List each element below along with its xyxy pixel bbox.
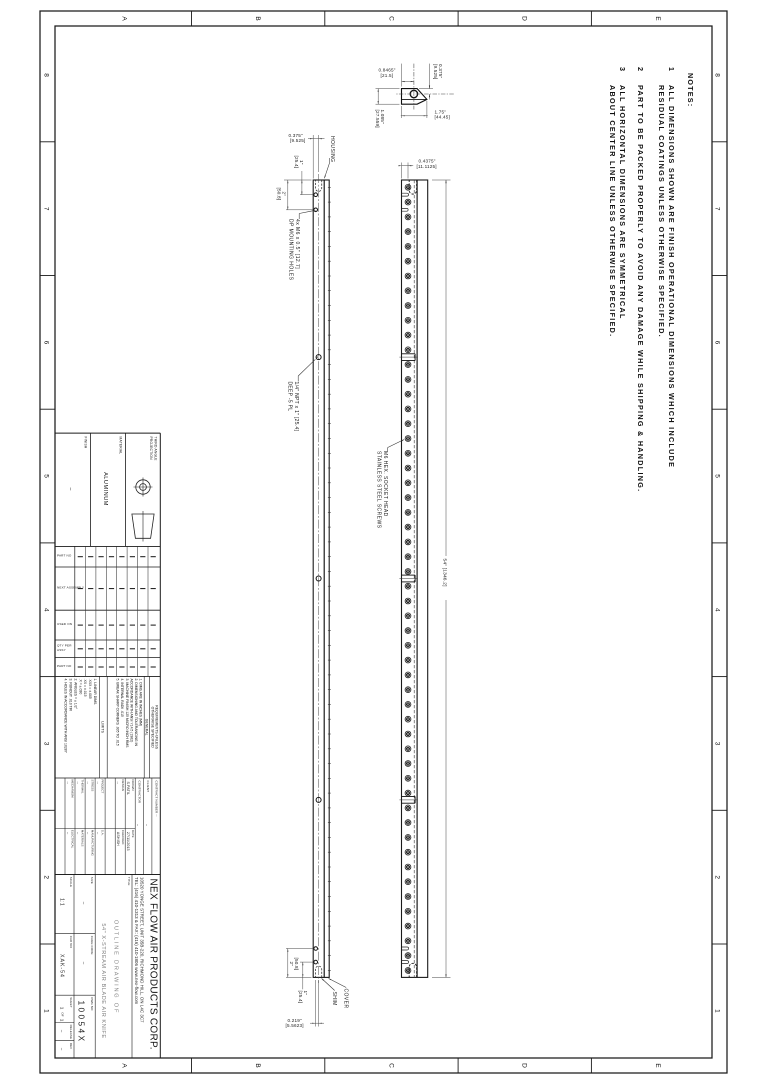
svg-text:–: –	[60, 1030, 65, 1033]
svg-text:SCALE: SCALE	[69, 877, 73, 887]
svg-text:–: –	[60, 1048, 65, 1051]
svg-text:MATERIALS: MATERIALS	[81, 830, 85, 847]
svg-text:ASSY: ASSY	[57, 648, 66, 652]
svg-text:MATERIAL: MATERIAL	[119, 437, 123, 455]
svg-text:1: 1	[667, 67, 676, 72]
svg-text:C: C	[387, 1063, 394, 1068]
svg-text:COVER: COVER	[342, 989, 348, 1009]
svg-text:CONTRACTOR: CONTRACTOR	[138, 781, 142, 804]
svg-text:--: --	[76, 832, 80, 835]
svg-text:ASHISH: ASHISH	[116, 832, 120, 846]
svg-text:TITLE: TITLE	[127, 877, 131, 886]
svg-text:[25.4]: [25.4]	[298, 991, 303, 1004]
svg-text:4x M6 x 0.5" [12.7]: 4x M6 x 0.5" [12.7]	[294, 219, 300, 269]
svg-text:[44.45]: [44.45]	[435, 115, 450, 120]
svg-text:OTHERWISE SPECIFIED: OTHERWISE SPECIFIED	[150, 707, 154, 749]
svg-text:ALUMINUM: ALUMINUM	[102, 472, 108, 506]
svg-text:RELEASE: RELEASE	[69, 1025, 73, 1040]
svg-text:SHEET: SHEET	[69, 997, 73, 1008]
svg-text:2. DIMENSIONING AND TOLERANCIN: 2. DIMENSIONING AND TOLERANCING IN	[134, 679, 138, 747]
svg-text:--: --	[116, 782, 120, 785]
svg-text:–: –	[82, 902, 87, 905]
svg-text:OUTLINE DRAWING OF: OUTLINE DRAWING OF	[113, 920, 119, 1014]
svg-text:PROJECTION: PROJECTION	[149, 437, 153, 461]
svg-text:OF: OF	[61, 1012, 65, 1016]
svg-text:7: 7	[714, 207, 721, 211]
svg-text:7: 7	[43, 207, 50, 211]
svg-text:8: 8	[43, 73, 50, 77]
svg-text:–: –	[67, 488, 73, 491]
svg-text:5: 5	[714, 474, 721, 478]
svg-text:--: --	[66, 782, 70, 785]
svg-text:0.4375": 0.4375"	[419, 159, 436, 164]
svg-text:S.PATIL: S.PATIL	[126, 782, 130, 796]
svg-text:MANUFACTURING: MANUFACTURING	[91, 830, 95, 857]
svg-text:2: 2	[714, 875, 721, 879]
svg-text:8: 8	[714, 73, 721, 77]
svg-text:CONTRACT NUMBER --: CONTRACT NUMBER --	[155, 781, 159, 817]
svg-text:[50.8]: [50.8]	[294, 958, 299, 971]
svg-text:USED ON: USED ON	[57, 622, 72, 626]
svg-text:NEX FLOW AIR PRODUCTS CORP.: NEX FLOW AIR PRODUCTS CORP.	[147, 879, 158, 1050]
svg-text:STAINLESS STEEL SCREWS: STAINLESS STEEL SCREWS	[376, 451, 382, 529]
svg-text:HOUSING: HOUSING	[329, 136, 335, 163]
svg-text:0.8465": 0.8465"	[379, 68, 396, 73]
svg-text:5: 5	[43, 474, 50, 478]
svg-text:PROJECT: PROJECT	[101, 780, 105, 794]
svg-text:3: 3	[618, 67, 627, 72]
svg-text:[21.5]: [21.5]	[381, 73, 394, 78]
svg-text:2. ANGLES = ± 1/2°: 2. ANGLES = ± 1/2°	[73, 679, 77, 710]
svg-text:3: 3	[714, 742, 721, 746]
svg-text:[9.525]: [9.525]	[433, 64, 438, 79]
svg-text:10520 YONGE STREET, UNIT 35B-2: 10520 YONGE STREET, UNIT 35B-220, RICHMO…	[140, 877, 145, 1023]
svg-text:10054X: 10054X	[77, 1000, 87, 1043]
svg-text:ALL DIMENSIONS SHOWN ARE FINIS: ALL DIMENSIONS SHOWN ARE FINISH OPERATIO…	[667, 85, 676, 468]
svg-text:ELECTRICAL: ELECTRICAL	[71, 830, 75, 849]
svg-text:1: 1	[714, 1009, 721, 1013]
svg-text:5. BREAK SHARP CORNERS .005 TO: 5. BREAK SHARP CORNERS .005 TO .015	[116, 679, 120, 746]
svg-text:ALL HORIZONTAL DIMENSIONS ARE: ALL HORIZONTAL DIMENSIONS ARE SYMMETRICA…	[618, 85, 627, 320]
svg-text:D: D	[521, 1063, 528, 1068]
svg-text:DESIGN: DESIGN	[121, 780, 125, 791]
svg-text:3: 3	[43, 742, 50, 746]
svg-text:–: –	[145, 824, 149, 826]
svg-text:PART TO BE PACKED PROPERLY TO: PART TO BE PACKED PROPERLY TO AVOID ANY …	[636, 85, 645, 492]
svg-text:DWG NO: DWG NO	[90, 997, 94, 1011]
svg-text:--: --	[66, 832, 70, 835]
svg-text:LIMITS: LIMITS	[101, 721, 105, 733]
svg-text:2: 2	[43, 875, 50, 879]
svg-text:[5.5623]: [5.5623]	[286, 1023, 304, 1028]
svg-text:54" [1346.2]: 54" [1346.2]	[442, 559, 448, 587]
svg-text:SIZE: SIZE	[90, 877, 94, 884]
svg-text:XAK-54: XAK-54	[59, 954, 65, 978]
svg-text:CLIENT: CLIENT	[146, 781, 150, 793]
svg-text:NOTES:: NOTES:	[686, 73, 695, 107]
svg-text:54" X-STREAM AIR BLADE AIR KNI: 54" X-STREAM AIR BLADE AIR KNIFE	[100, 923, 106, 1038]
svg-text:--: --	[96, 832, 100, 835]
svg-text:1. DIMS ARE IN INCHES (MM): 1. DIMS ARE IN INCHES (MM)	[138, 679, 142, 727]
svg-text:4. INTERNAL RADII .015: 4. INTERNAL RADII .015	[120, 679, 124, 718]
svg-text:B: B	[254, 1063, 261, 1067]
svg-text:1. LINEAR DIMS.: 1. LINEAR DIMS.	[93, 679, 97, 706]
svg-text:2: 2	[636, 67, 645, 72]
svg-text:27/11/2013: 27/11/2013	[126, 832, 130, 851]
svg-text:DP MOUNTING HOLES: DP MOUNTING HOLES	[288, 219, 294, 281]
svg-text:–: –	[136, 824, 140, 826]
svg-text:--: --	[86, 782, 90, 785]
svg-text:DEEP -5 PL: DEEP -5 PL	[287, 382, 293, 412]
svg-text:E: E	[654, 1063, 661, 1068]
svg-text:CHECKED: CHECKED	[121, 830, 125, 844]
svg-text:--: --	[96, 782, 100, 785]
svg-text:--: --	[76, 782, 80, 785]
svg-text:2": 2"	[289, 962, 294, 967]
svg-text:1: 1	[60, 1019, 65, 1022]
svg-text:RESIDUAL COATINGS UNLESS OTHER: RESIDUAL COATINGS UNLESS OTHERWISE SPECI…	[657, 85, 666, 338]
svg-text:6: 6	[43, 341, 50, 345]
svg-text:6: 6	[714, 341, 721, 345]
svg-text:ACCORDANCE WITH ANSI Y14.5 (19: ACCORDANCE WITH ANSI Y14.5 (1982)	[129, 679, 133, 743]
svg-text:DRAWN: DRAWN	[131, 780, 135, 791]
svg-text:FINISH: FINISH	[84, 437, 88, 449]
svg-text:S.A.: S.A.	[101, 830, 105, 836]
svg-text:.XX = ±.015: .XX = ±.015	[83, 679, 87, 697]
svg-text:1: 1	[43, 1009, 50, 1013]
svg-text:[50.8]: [50.8]	[277, 188, 282, 201]
svg-text:DATE: DATE	[131, 830, 135, 838]
svg-text:M6 HEX. SOCKET HEAD: M6 HEX. SOCKET HEAD	[382, 451, 388, 517]
svg-text:1: 1	[60, 1007, 65, 1010]
svg-text:THIRD ANGLE: THIRD ANGLE	[154, 437, 158, 462]
svg-text:3. MACHINE FINISH 125 MICRO IN: 3. MACHINE FINISH 125 MICRO INCH RMS	[125, 679, 129, 749]
svg-text:TEL: (416) 410-1313 & FAX: (41: TEL: (416) 410-1313 & FAX: (416) 410-180…	[134, 877, 139, 1005]
svg-text:.XXX = ±.005: .XXX = ±.005	[88, 679, 92, 699]
svg-text:REV: REV	[69, 1043, 73, 1049]
svg-text:SHIM: SHIM	[331, 992, 337, 1006]
svg-text:[27.559]: [27.559]	[375, 110, 380, 128]
svg-text:A: A	[121, 16, 128, 21]
svg-text:[25.4]: [25.4]	[294, 156, 299, 169]
svg-text:E: E	[654, 16, 661, 21]
svg-text:PART NO: PART NO	[57, 554, 72, 558]
svg-text:--: --	[86, 832, 90, 835]
svg-text:B: B	[254, 16, 261, 20]
svg-text:MECHANISM: MECHANISM	[71, 780, 75, 799]
svg-text:[11.1125]: [11.1125]	[417, 164, 437, 169]
svg-text:4: 4	[714, 608, 721, 612]
svg-text:GENERAL: GENERAL	[145, 719, 149, 736]
svg-text:ABOUT CENTER LINE UNLESS OTHER: ABOUT CENTER LINE UNLESS OTHERWISE SPECI…	[608, 85, 617, 337]
svg-text:–: –	[82, 962, 87, 965]
svg-text:D: D	[521, 16, 528, 21]
svg-text:1/4" NPT x 1" [25.4]: 1/4" NPT x 1" [25.4]	[293, 382, 299, 432]
svg-text:4. HOLES IN ACCORDANCE WITH AN: 4. HOLES IN ACCORDANCE WITH ANSI 10287	[64, 679, 68, 753]
svg-text:A: A	[121, 1063, 128, 1068]
svg-text:STRESS: STRESS	[91, 780, 95, 792]
svg-text:C: C	[387, 16, 394, 21]
svg-text:CAD NO: CAD NO	[69, 936, 73, 949]
svg-text:[9.525]: [9.525]	[290, 138, 305, 143]
svg-text:4: 4	[43, 608, 50, 612]
svg-text:3. RUNOUT .010 TIR: 3. RUNOUT .010 TIR	[69, 679, 73, 712]
svg-text:1:1: 1:1	[59, 898, 65, 906]
svg-text:THERMAL: THERMAL	[81, 780, 85, 795]
svg-text:PART NO: PART NO	[57, 664, 72, 668]
svg-text:.X = ±.030: .X = ±.030	[78, 679, 82, 695]
svg-text:CAGE CODE: CAGE CODE	[90, 936, 94, 955]
